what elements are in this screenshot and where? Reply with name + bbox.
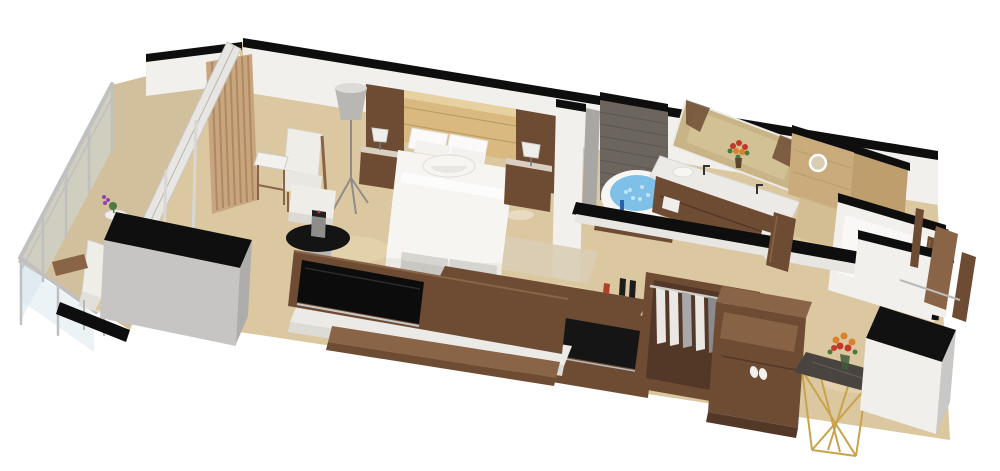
wardrobe (706, 286, 812, 438)
coffee-machine (311, 210, 326, 238)
round-mirror (810, 155, 826, 171)
wine-bottle-1 (619, 278, 626, 296)
floor-plan-render (0, 0, 1000, 471)
table-lamp-right (522, 142, 540, 158)
vanity-sink (673, 167, 693, 177)
door-slab-2 (952, 252, 976, 322)
lounge-chair-back (284, 128, 322, 176)
ledge-bottle (620, 200, 624, 210)
flower-vase (735, 158, 742, 168)
small-red-bottle (603, 283, 610, 294)
table-lamp (372, 128, 388, 142)
floor-plan-canvas (0, 0, 1000, 471)
wine-bottle-2 (629, 280, 636, 298)
